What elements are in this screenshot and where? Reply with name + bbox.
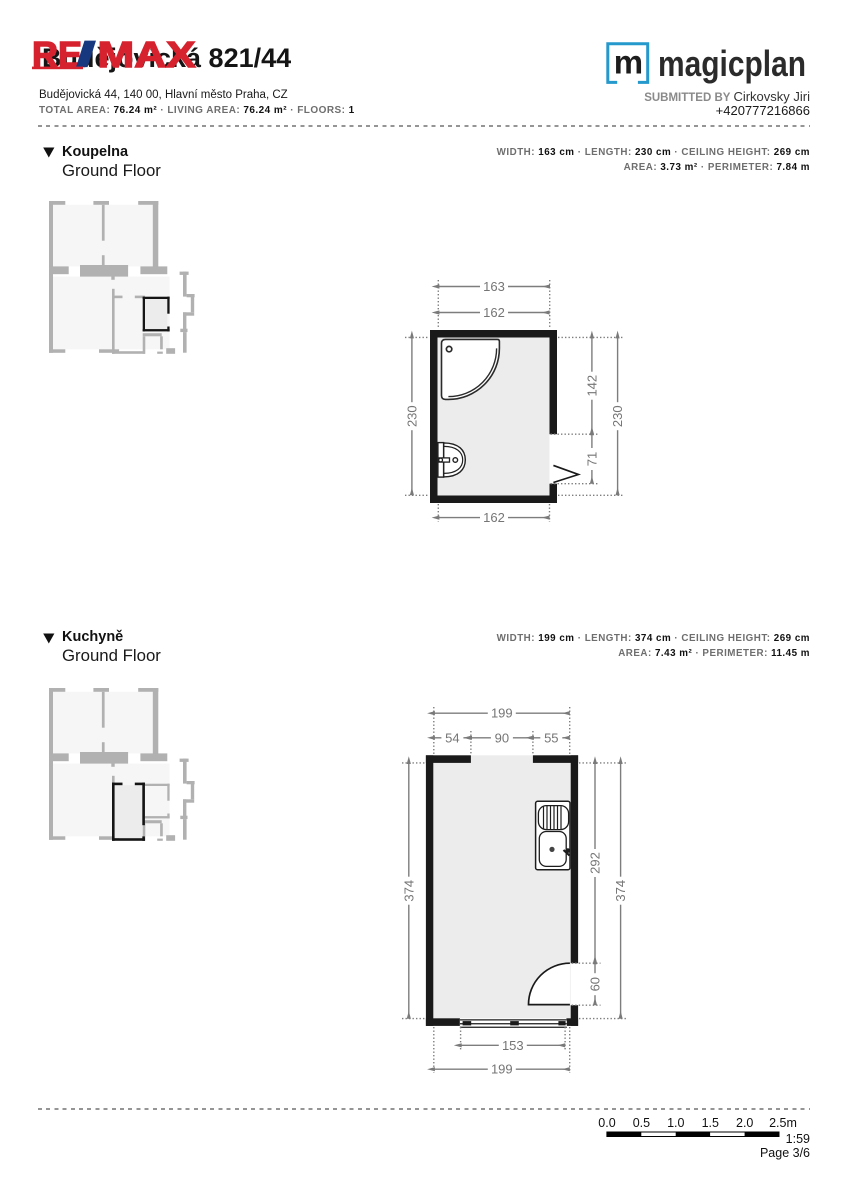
svg-text:1.0: 1.0 bbox=[667, 1116, 684, 1130]
svg-text:2.0: 2.0 bbox=[736, 1116, 753, 1130]
svg-text:162: 162 bbox=[483, 510, 505, 525]
svg-text:0.5: 0.5 bbox=[633, 1116, 650, 1130]
svg-text:2.5m: 2.5m bbox=[769, 1116, 797, 1130]
svg-text:153: 153 bbox=[502, 1038, 524, 1053]
svg-text:MAX: MAX bbox=[98, 36, 197, 72]
svg-text:199: 199 bbox=[491, 706, 513, 721]
svg-text:163: 163 bbox=[483, 279, 505, 294]
svg-text:230: 230 bbox=[404, 405, 419, 427]
svg-text:55: 55 bbox=[544, 730, 558, 745]
svg-text:90: 90 bbox=[495, 730, 509, 745]
svg-text:60: 60 bbox=[588, 977, 603, 991]
svg-text:1.5: 1.5 bbox=[702, 1116, 719, 1130]
svg-text:RE: RE bbox=[32, 36, 82, 72]
svg-text:374: 374 bbox=[401, 880, 416, 902]
svg-text:199: 199 bbox=[491, 1062, 513, 1077]
svg-text:374: 374 bbox=[613, 880, 628, 902]
svg-text:54: 54 bbox=[445, 730, 459, 745]
svg-text:0.0: 0.0 bbox=[598, 1116, 615, 1130]
svg-text:162: 162 bbox=[483, 305, 505, 320]
svg-text:71: 71 bbox=[584, 452, 599, 466]
svg-text:230: 230 bbox=[610, 405, 625, 427]
svg-text:292: 292 bbox=[588, 852, 603, 874]
svg-text:magicplan: magicplan bbox=[658, 43, 806, 84]
svg-text:142: 142 bbox=[584, 375, 599, 397]
svg-text:m: m bbox=[614, 43, 643, 80]
